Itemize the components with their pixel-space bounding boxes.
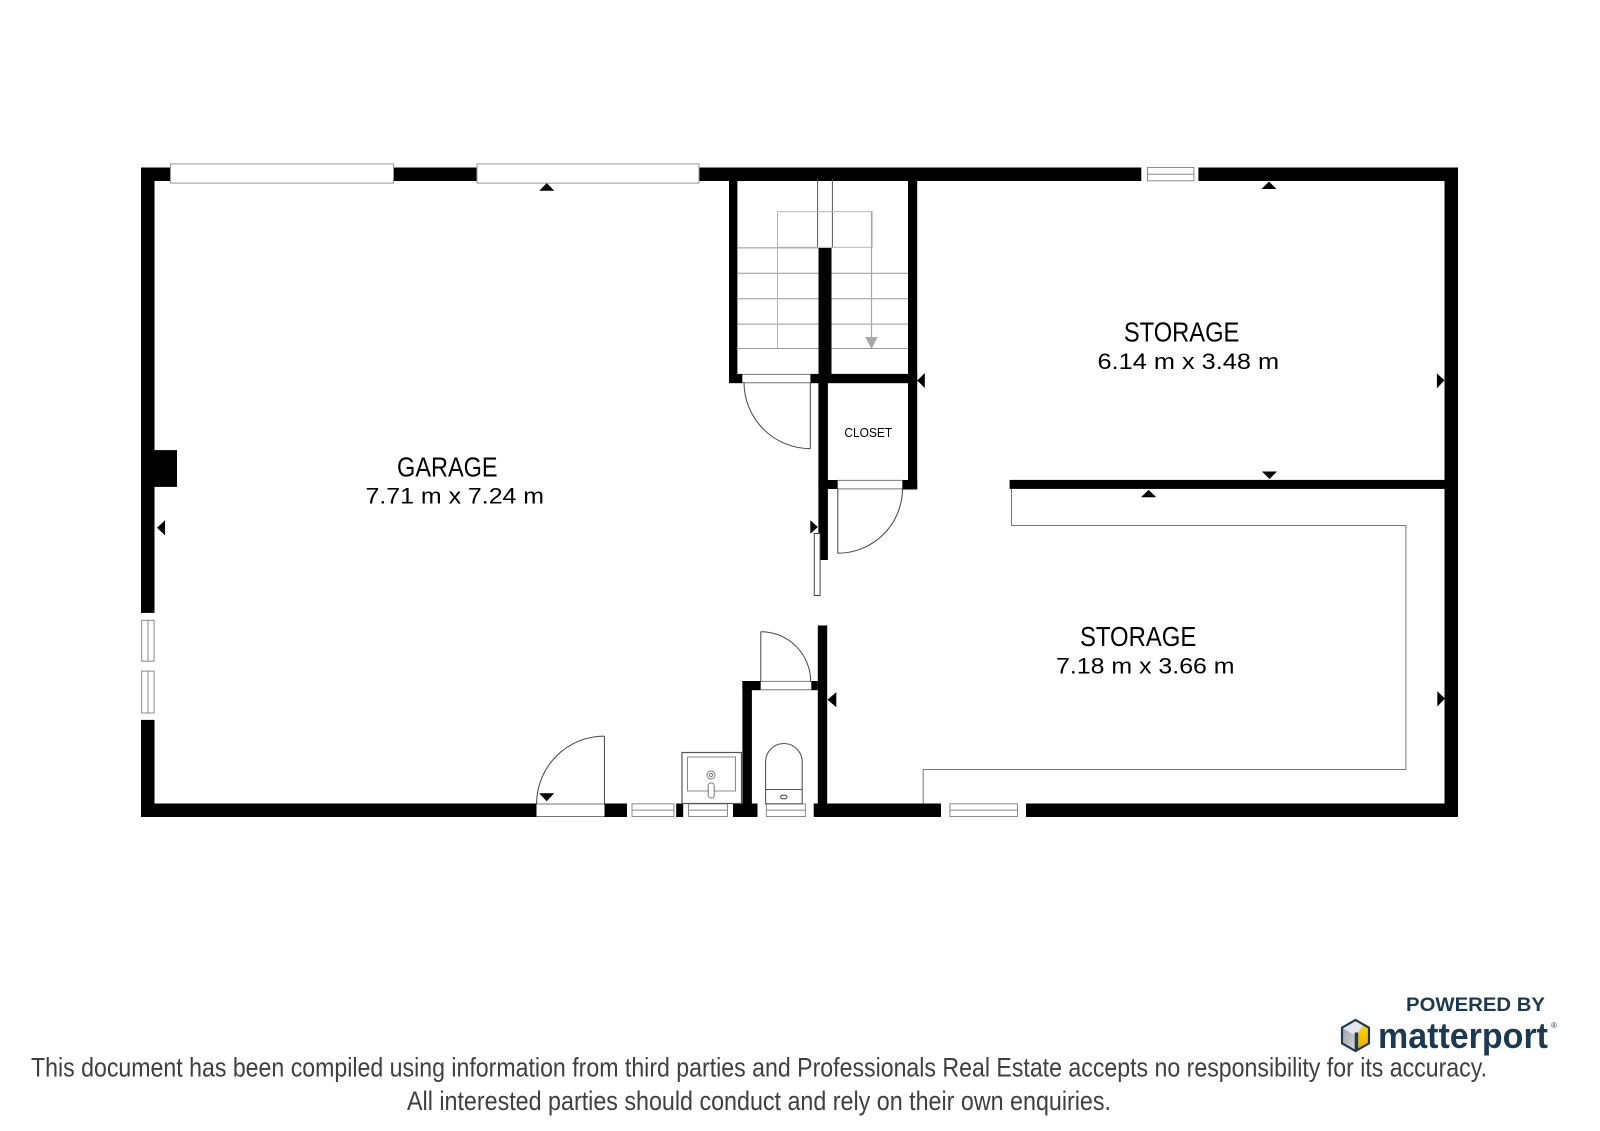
svg-text:STORAGE: STORAGE [1080, 621, 1196, 652]
svg-text:This document has been compile: This document has been compiled using in… [31, 1053, 1487, 1083]
svg-text:All interested parties should: All interested parties should conduct an… [407, 1086, 1111, 1116]
svg-text:GARAGE: GARAGE [397, 452, 498, 483]
svg-text:6.14 m x 3.48 m: 6.14 m x 3.48 m [1098, 349, 1280, 374]
svg-text:7.71 m x 7.24 m: 7.71 m x 7.24 m [366, 484, 545, 509]
svg-text:®: ® [1551, 1021, 1557, 1030]
svg-text:POWERED BY: POWERED BY [1406, 994, 1545, 1016]
svg-text:matterport: matterport [1378, 1015, 1548, 1056]
svg-text:STORAGE: STORAGE [1124, 316, 1240, 347]
svg-text:CLOSET: CLOSET [844, 426, 892, 440]
svg-text:7.18 m x 3.66 m: 7.18 m x 3.66 m [1056, 654, 1235, 679]
